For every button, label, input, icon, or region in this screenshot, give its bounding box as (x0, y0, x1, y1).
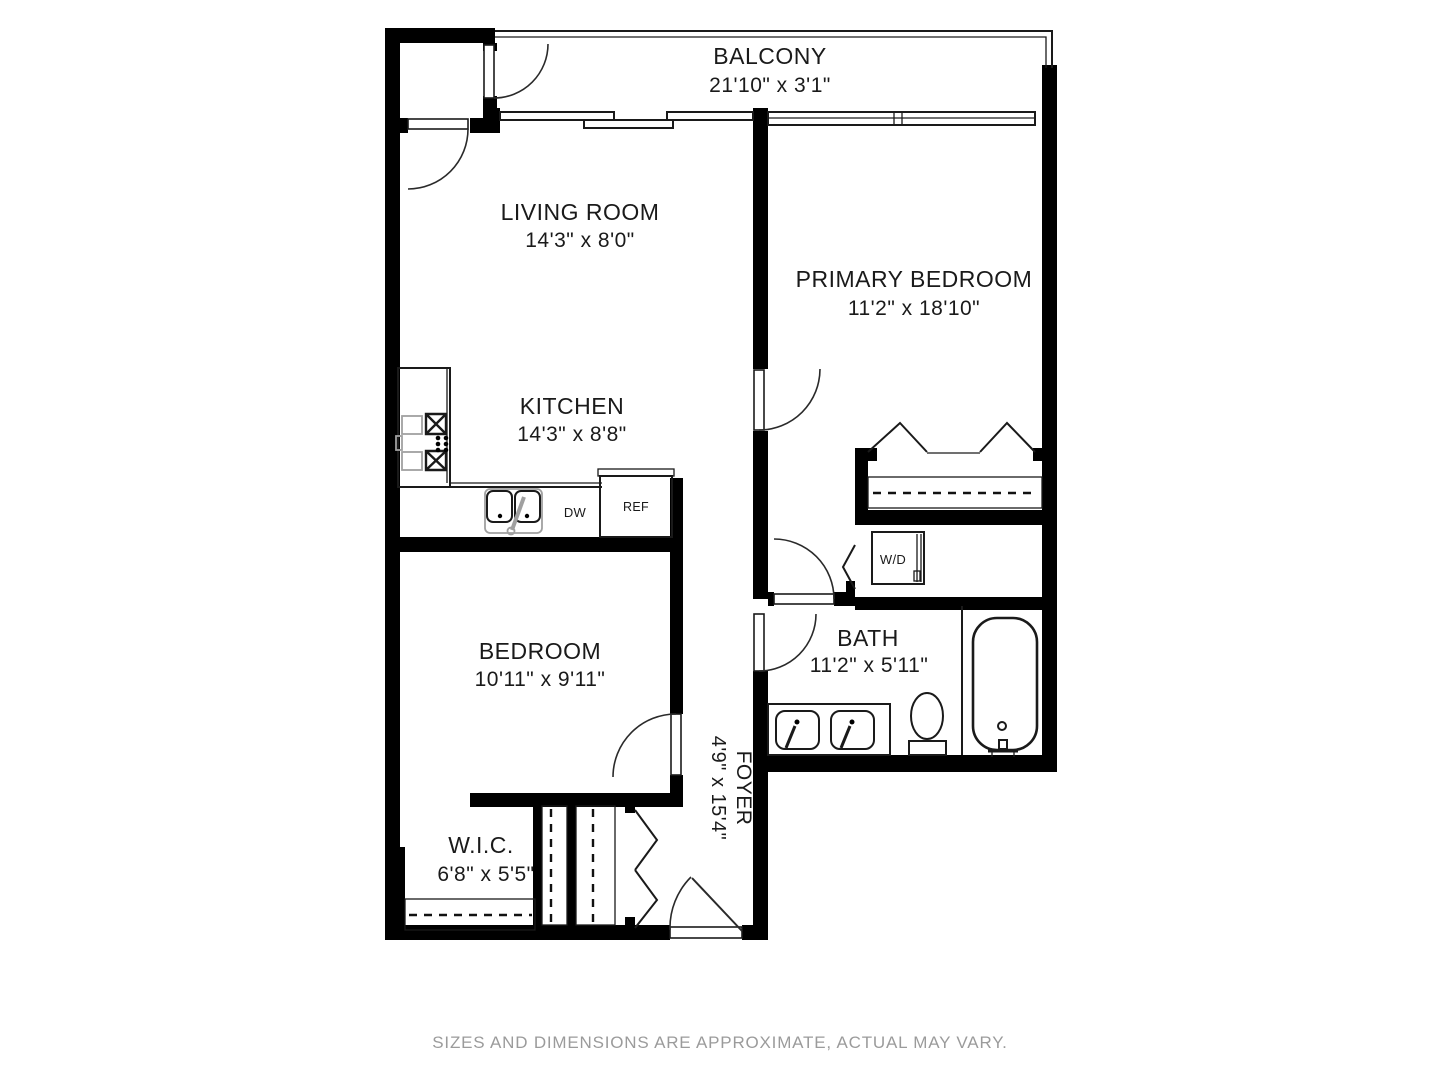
burner (426, 414, 446, 434)
room-dims-balcony: 21'10" x 3'1" (709, 74, 831, 97)
burner (402, 452, 422, 470)
burner (426, 451, 446, 470)
door-swing-arc (408, 129, 468, 189)
door-leaf-open (692, 878, 742, 931)
stove (396, 414, 448, 470)
room-label-primary-bedroom: PRIMARY BEDROOM (796, 266, 1033, 292)
room-dims-primary-bedroom: 11'2" x 18'10" (848, 297, 980, 320)
door-entry (670, 877, 742, 938)
door-bath (754, 614, 816, 671)
vanity-sink (831, 711, 874, 749)
toilet-tank (909, 741, 946, 755)
door-primary-bedroom (754, 369, 820, 430)
room-dims-kitchen: 14'3" x 8'8" (517, 423, 627, 446)
room-label-balcony: BALCONY (713, 43, 826, 69)
room-dims-foyer: 4'9" x 15'4" (707, 736, 729, 841)
door-swing-arc (613, 714, 676, 777)
kitchen-sink (485, 489, 542, 535)
faucet-dot (850, 720, 855, 725)
refrigerator-label: REF (623, 500, 649, 514)
room-label-bath: BATH (837, 625, 899, 651)
bifold-door (635, 810, 657, 928)
floor-plan: BALCONY 21'10" x 3'1" LIVING ROOM 14'3" … (0, 0, 1440, 1080)
ref-top (598, 469, 674, 476)
room-label-bedroom: BEDROOM (479, 638, 601, 664)
closet-box (576, 806, 615, 925)
window-wall (500, 112, 1035, 128)
door-leaf (671, 714, 681, 775)
disclaimer-text: SIZES AND DIMENSIONS ARE APPROXIMATE, AC… (432, 1033, 1007, 1052)
door-leaf (774, 594, 834, 604)
sliding-door-panel (500, 112, 614, 120)
room-label-kitchen: KITCHEN (520, 393, 624, 419)
entry-threshold (670, 927, 742, 938)
room-label-wic: W.I.C. (448, 832, 514, 858)
faucet-dot (795, 720, 800, 725)
door-storage-living (408, 119, 468, 189)
bathtub (973, 618, 1037, 750)
room-dims-bath: 11'2" x 5'11" (810, 654, 929, 677)
drain (525, 514, 529, 518)
dishwasher-label: DW (564, 505, 587, 520)
faucet (512, 497, 524, 530)
door-swing-arc (774, 539, 834, 599)
room-label-foyer: FOYER (732, 751, 755, 826)
room-label-living-room: LIVING ROOM (501, 199, 660, 225)
door-bedroom (613, 714, 681, 777)
sliding-door-panel (667, 112, 753, 120)
bath-fixtures (768, 606, 1037, 757)
toilet-bowl (911, 693, 943, 739)
door-swing-arc (759, 614, 816, 671)
room-dims-living-room: 14'3" x 8'0" (525, 229, 635, 252)
door-hallway (774, 539, 834, 604)
room-dims-bedroom: 10'11" x 9'11" (475, 668, 606, 691)
tub-drain (998, 722, 1006, 730)
tub-faucet-body (999, 740, 1007, 749)
vanity-sink (776, 711, 819, 749)
burner (402, 416, 422, 434)
washer-dryer-label: W/D (880, 552, 906, 567)
door-leaf (754, 614, 764, 671)
door-swing-arc (759, 369, 820, 430)
door-leaf (408, 119, 468, 129)
door-swing-arc (670, 877, 691, 930)
window-mullions (768, 112, 1035, 125)
floor-plan-page: BALCONY 21'10" x 3'1" LIVING ROOM 14'3" … (0, 0, 1440, 1080)
door-leaf (754, 370, 764, 430)
door-leaf (484, 45, 494, 98)
closet-box (542, 806, 567, 925)
sliding-door-panel (584, 120, 673, 128)
room-dims-wic: 6'8" x 5'5" (437, 863, 534, 886)
door-swing-arc (494, 44, 548, 98)
drain (498, 514, 502, 518)
door-balcony-storage (484, 44, 548, 98)
bifold-door (868, 423, 1035, 452)
